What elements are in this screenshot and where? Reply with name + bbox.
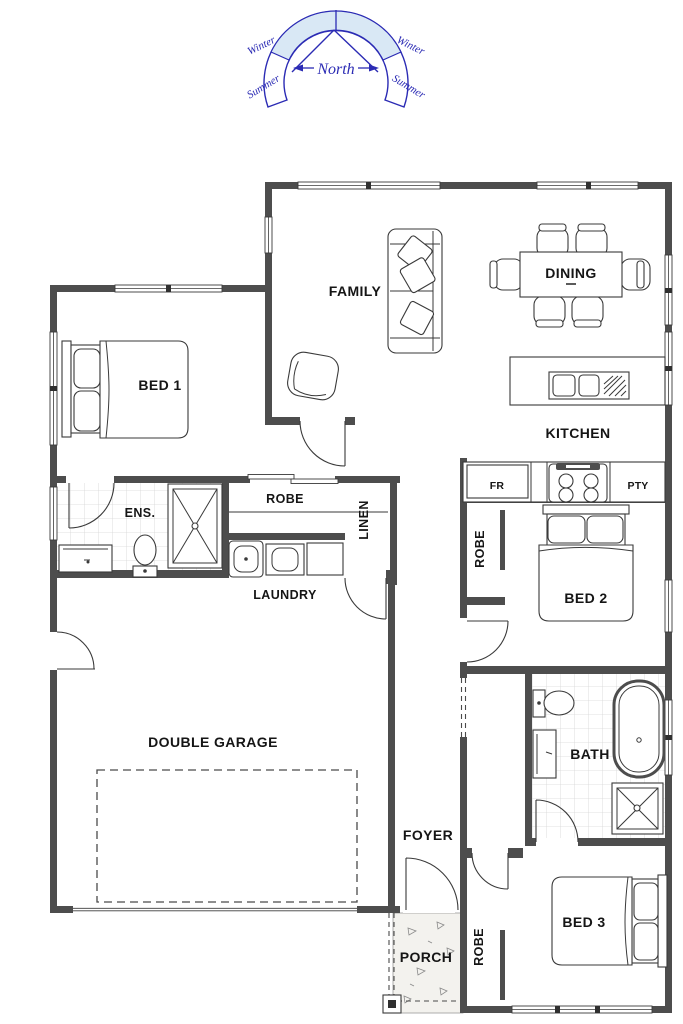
bed2-label: BED 2 <box>564 590 607 606</box>
bath-shower <box>612 783 663 834</box>
robe2-label: ROBE <box>473 530 487 568</box>
robe-sliding-door-panel <box>248 475 294 480</box>
floor-plan-page: North Winter Winter Summer Summer <box>0 0 683 1024</box>
bed1-pillow <box>74 391 100 431</box>
foyer-label: FOYER <box>403 827 453 843</box>
linen-label: LINEN <box>357 500 371 540</box>
robe-sliding-door-panel <box>291 479 338 484</box>
hall-door-opening <box>300 417 345 425</box>
sofa <box>388 229 442 353</box>
pantry-label: PTY <box>627 480 648 492</box>
front-door <box>406 858 458 910</box>
garage-label: DOUBLE GARAGE <box>148 734 278 750</box>
bed2-headboard <box>543 505 629 514</box>
north-compass: North Winter Winter Summer Summer <box>245 10 428 107</box>
bed2-pillow <box>587 516 623 543</box>
ensuite-shower <box>168 484 222 568</box>
bed2-door <box>467 621 508 662</box>
bed2-blanket <box>539 545 633 621</box>
bed2-door-opening <box>460 618 467 662</box>
porch-label: PORCH <box>400 949 453 965</box>
bath-label: BATH <box>570 746 609 762</box>
compass-right-arrowhead <box>369 65 379 72</box>
bed1-pillow <box>74 349 100 388</box>
robe1-label: ROBE <box>266 492 304 506</box>
front-door-opening <box>403 906 455 913</box>
bathtub <box>614 681 664 777</box>
bed1-label: BED 1 <box>138 377 181 393</box>
bed2-pillow <box>548 516 585 543</box>
armchair <box>286 350 341 402</box>
robe3-label: ROBE <box>472 928 486 966</box>
hall-bulkhead-line <box>462 678 466 737</box>
garage-side-door <box>57 632 95 669</box>
bath-vanity <box>533 730 556 778</box>
bed1-headboard <box>62 341 71 437</box>
bed3-headboard <box>658 875 667 967</box>
family-label: FAMILY <box>329 283 382 299</box>
bath-toilet <box>533 690 574 717</box>
compass-north-label: North <box>316 61 354 78</box>
bed3-label: BED 3 <box>562 914 605 930</box>
ensuite-door-opening <box>66 476 114 483</box>
family-hall-door <box>300 421 345 466</box>
bed3-door <box>472 853 508 889</box>
porch-post <box>383 995 401 1013</box>
laundry-garage-door <box>345 578 386 619</box>
laundry-fixtures <box>229 541 343 577</box>
garage-side-door-opening <box>50 632 57 670</box>
kitchen-label: KITCHEN <box>545 425 610 441</box>
garage-car-space <box>97 770 357 902</box>
cooktop <box>549 463 607 502</box>
fridge-label: FR <box>490 480 505 492</box>
ensuite-label: ENS. <box>125 506 156 520</box>
dining-label: DINING <box>545 265 596 281</box>
garage-door-opening <box>73 906 357 913</box>
bed3-pillow <box>634 923 658 960</box>
laundry-door-opening <box>345 570 386 578</box>
laundry-bench <box>307 543 343 575</box>
laundry-label: LAUNDRY <box>253 588 317 602</box>
kitchen-island <box>510 357 665 405</box>
floor-plan-drawing: North Winter Winter Summer Summer <box>0 0 683 1024</box>
ensuite-toilet <box>133 535 157 577</box>
bed3-pillow <box>634 883 658 920</box>
